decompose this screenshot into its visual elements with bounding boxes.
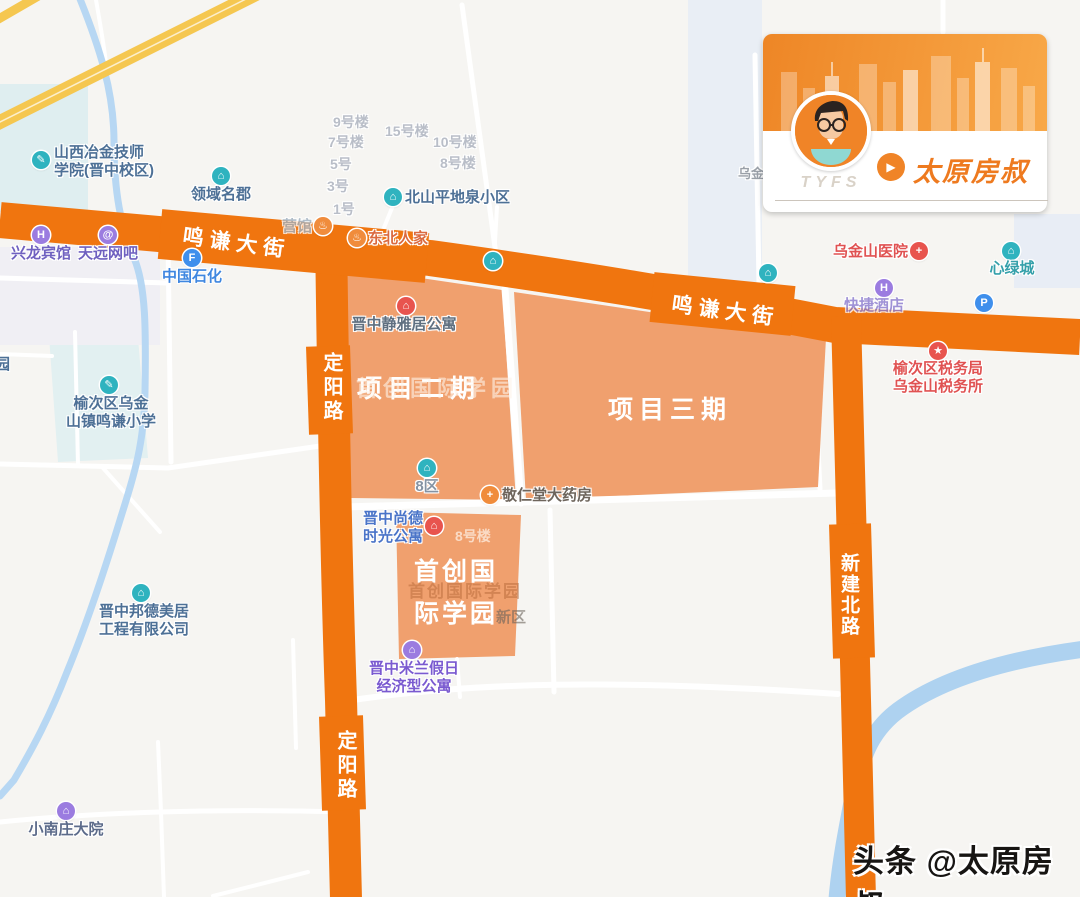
edge-yuan: 园 xyxy=(0,353,10,374)
poi-jingyaju-apartment-icon: ⌂ xyxy=(397,297,415,315)
bldg-3: 3号 xyxy=(327,176,349,196)
poi-bangde-meiju-company-label: 晋中邦德美居工程有限公司 xyxy=(99,603,189,638)
tyfs-watermark-card: TYFS ▶ 太原房叔 xyxy=(763,34,1047,212)
poi-beishan-pingdiquan-label: 北山平地泉小区 xyxy=(405,189,510,207)
poi-dongbei-renjia-icon: ♨ xyxy=(348,229,366,247)
card-divider xyxy=(775,200,1048,201)
poi-xinglong-hotel-icon: H xyxy=(32,226,50,244)
dingyang-road-label-bottom: 定阳路 xyxy=(331,730,360,802)
poi-lingyu-mingjun-label: 领域名郡 xyxy=(191,186,251,204)
edge-wujin: 乌金 xyxy=(738,163,764,182)
ghost-campus-1: 首创国际学园 xyxy=(356,371,518,403)
poi-xinglong-hotel-label: 兴龙宾馆 xyxy=(11,245,71,263)
poi-shanxi-metallurgy-college-icon: ✎ xyxy=(32,151,50,169)
bldg-1: 1号 xyxy=(333,199,355,219)
poi-xiaonanzhuang-dayuan-label: 小南庄大院 xyxy=(28,821,103,839)
ghost-bldg-8: 8号楼 xyxy=(455,526,491,546)
bldg-8: 8号楼 xyxy=(440,153,476,173)
bldg-5: 5号 xyxy=(330,154,352,174)
poi-jingrentang-pharmacy-icon: + xyxy=(481,486,499,504)
poi-xinlvcheng-icon: ⌂ xyxy=(1002,242,1020,260)
poi-wujinshan-hospital-icon: + xyxy=(910,242,928,260)
poi-mingqian-primary-school-label: 榆次区乌金山镇鸣谦小学 xyxy=(66,395,156,430)
poi-tianyuan-netbar-label: 天远网吧 xyxy=(78,245,138,263)
bldg-15: 15号楼 xyxy=(385,121,429,141)
play-icon: ▶ xyxy=(877,153,905,181)
poi-shangde-time-apartment-label: 晋中尚德时光公寓 xyxy=(363,510,423,545)
bldg-9: 9号楼 xyxy=(333,112,369,132)
poi-8-district-label: 8区 xyxy=(415,478,438,496)
poi-unnamed-teal-2-icon: ⌂ xyxy=(484,252,502,270)
tyfs-avatar xyxy=(791,91,871,171)
poi-shangde-time-apartment-icon: ⌂ xyxy=(425,517,443,535)
xinjianbei-road-label: 新建北路 xyxy=(835,553,862,637)
ghost-xinqu: 新区 xyxy=(496,606,526,627)
poi-xiaonanzhuang-dayuan-icon: ⌂ xyxy=(57,802,75,820)
poi-milan-holiday-apartment-icon: ⌂ xyxy=(403,641,421,659)
bldg-7: 7号楼 xyxy=(328,132,364,152)
poi-mingqian-primary-school-icon: ✎ xyxy=(100,376,118,394)
poi-dongbei-renjia-label: 东北人家 xyxy=(368,230,428,248)
poi-lingyu-mingjun-icon: ⌂ xyxy=(212,167,230,185)
bldg-10: 10号楼 xyxy=(433,132,477,152)
poi-beishan-pingdiquan-icon: ⌂ xyxy=(384,188,402,206)
poi-express-hotel-label: 快捷酒店 xyxy=(844,297,904,315)
tyfs-caption: TYFS xyxy=(785,174,877,192)
poi-jingrentang-pharmacy-label: 敬仁堂大药房 xyxy=(502,487,592,505)
poi-tianyuan-netbar-icon: @ xyxy=(99,226,117,244)
poi-tax-office-icon: ★ xyxy=(929,342,947,360)
poi-8-district-icon: ⌂ xyxy=(418,459,436,477)
poi-jingyaju-apartment-label: 晋中静雅居公寓 xyxy=(351,316,456,334)
poi-bangde-meiju-company-icon: ⌂ xyxy=(132,584,150,602)
poi-sinopec-label: 中国石化 xyxy=(162,268,222,286)
poi-guan-partial-icon: ♨ xyxy=(314,217,332,235)
poi-unnamed-teal-1-icon: ⌂ xyxy=(759,264,777,282)
brand-name: 太原房叔 xyxy=(913,150,1029,189)
poi-shanxi-metallurgy-college-label: 山西冶金技师学院(晋中校区) xyxy=(54,144,154,179)
poi-express-hotel-icon: H xyxy=(875,279,893,297)
ghost-campus-2: 首创国际学园 xyxy=(408,577,522,602)
poi-parking-icon: P xyxy=(975,294,993,312)
poi-xinlvcheng-label: 心绿城 xyxy=(989,260,1034,278)
footer-watermark: 头条 @太原房叔 xyxy=(853,836,1080,897)
dingyang-road-label-top: 定阳路 xyxy=(317,352,346,424)
map-canvas[interactable]: 项目二期 项目三期 首创国 际学园 鸣谦大街 鸣谦大街 定阳路 定阳路 新建北路… xyxy=(0,0,1080,897)
poi-tax-office-label: 榆次区税务局乌金山税务所 xyxy=(893,360,983,395)
poi-milan-holiday-apartment-label: 晋中米兰假日经济型公寓 xyxy=(369,660,459,695)
poi-wujinshan-hospital-label: 乌金山医院 xyxy=(833,243,908,261)
